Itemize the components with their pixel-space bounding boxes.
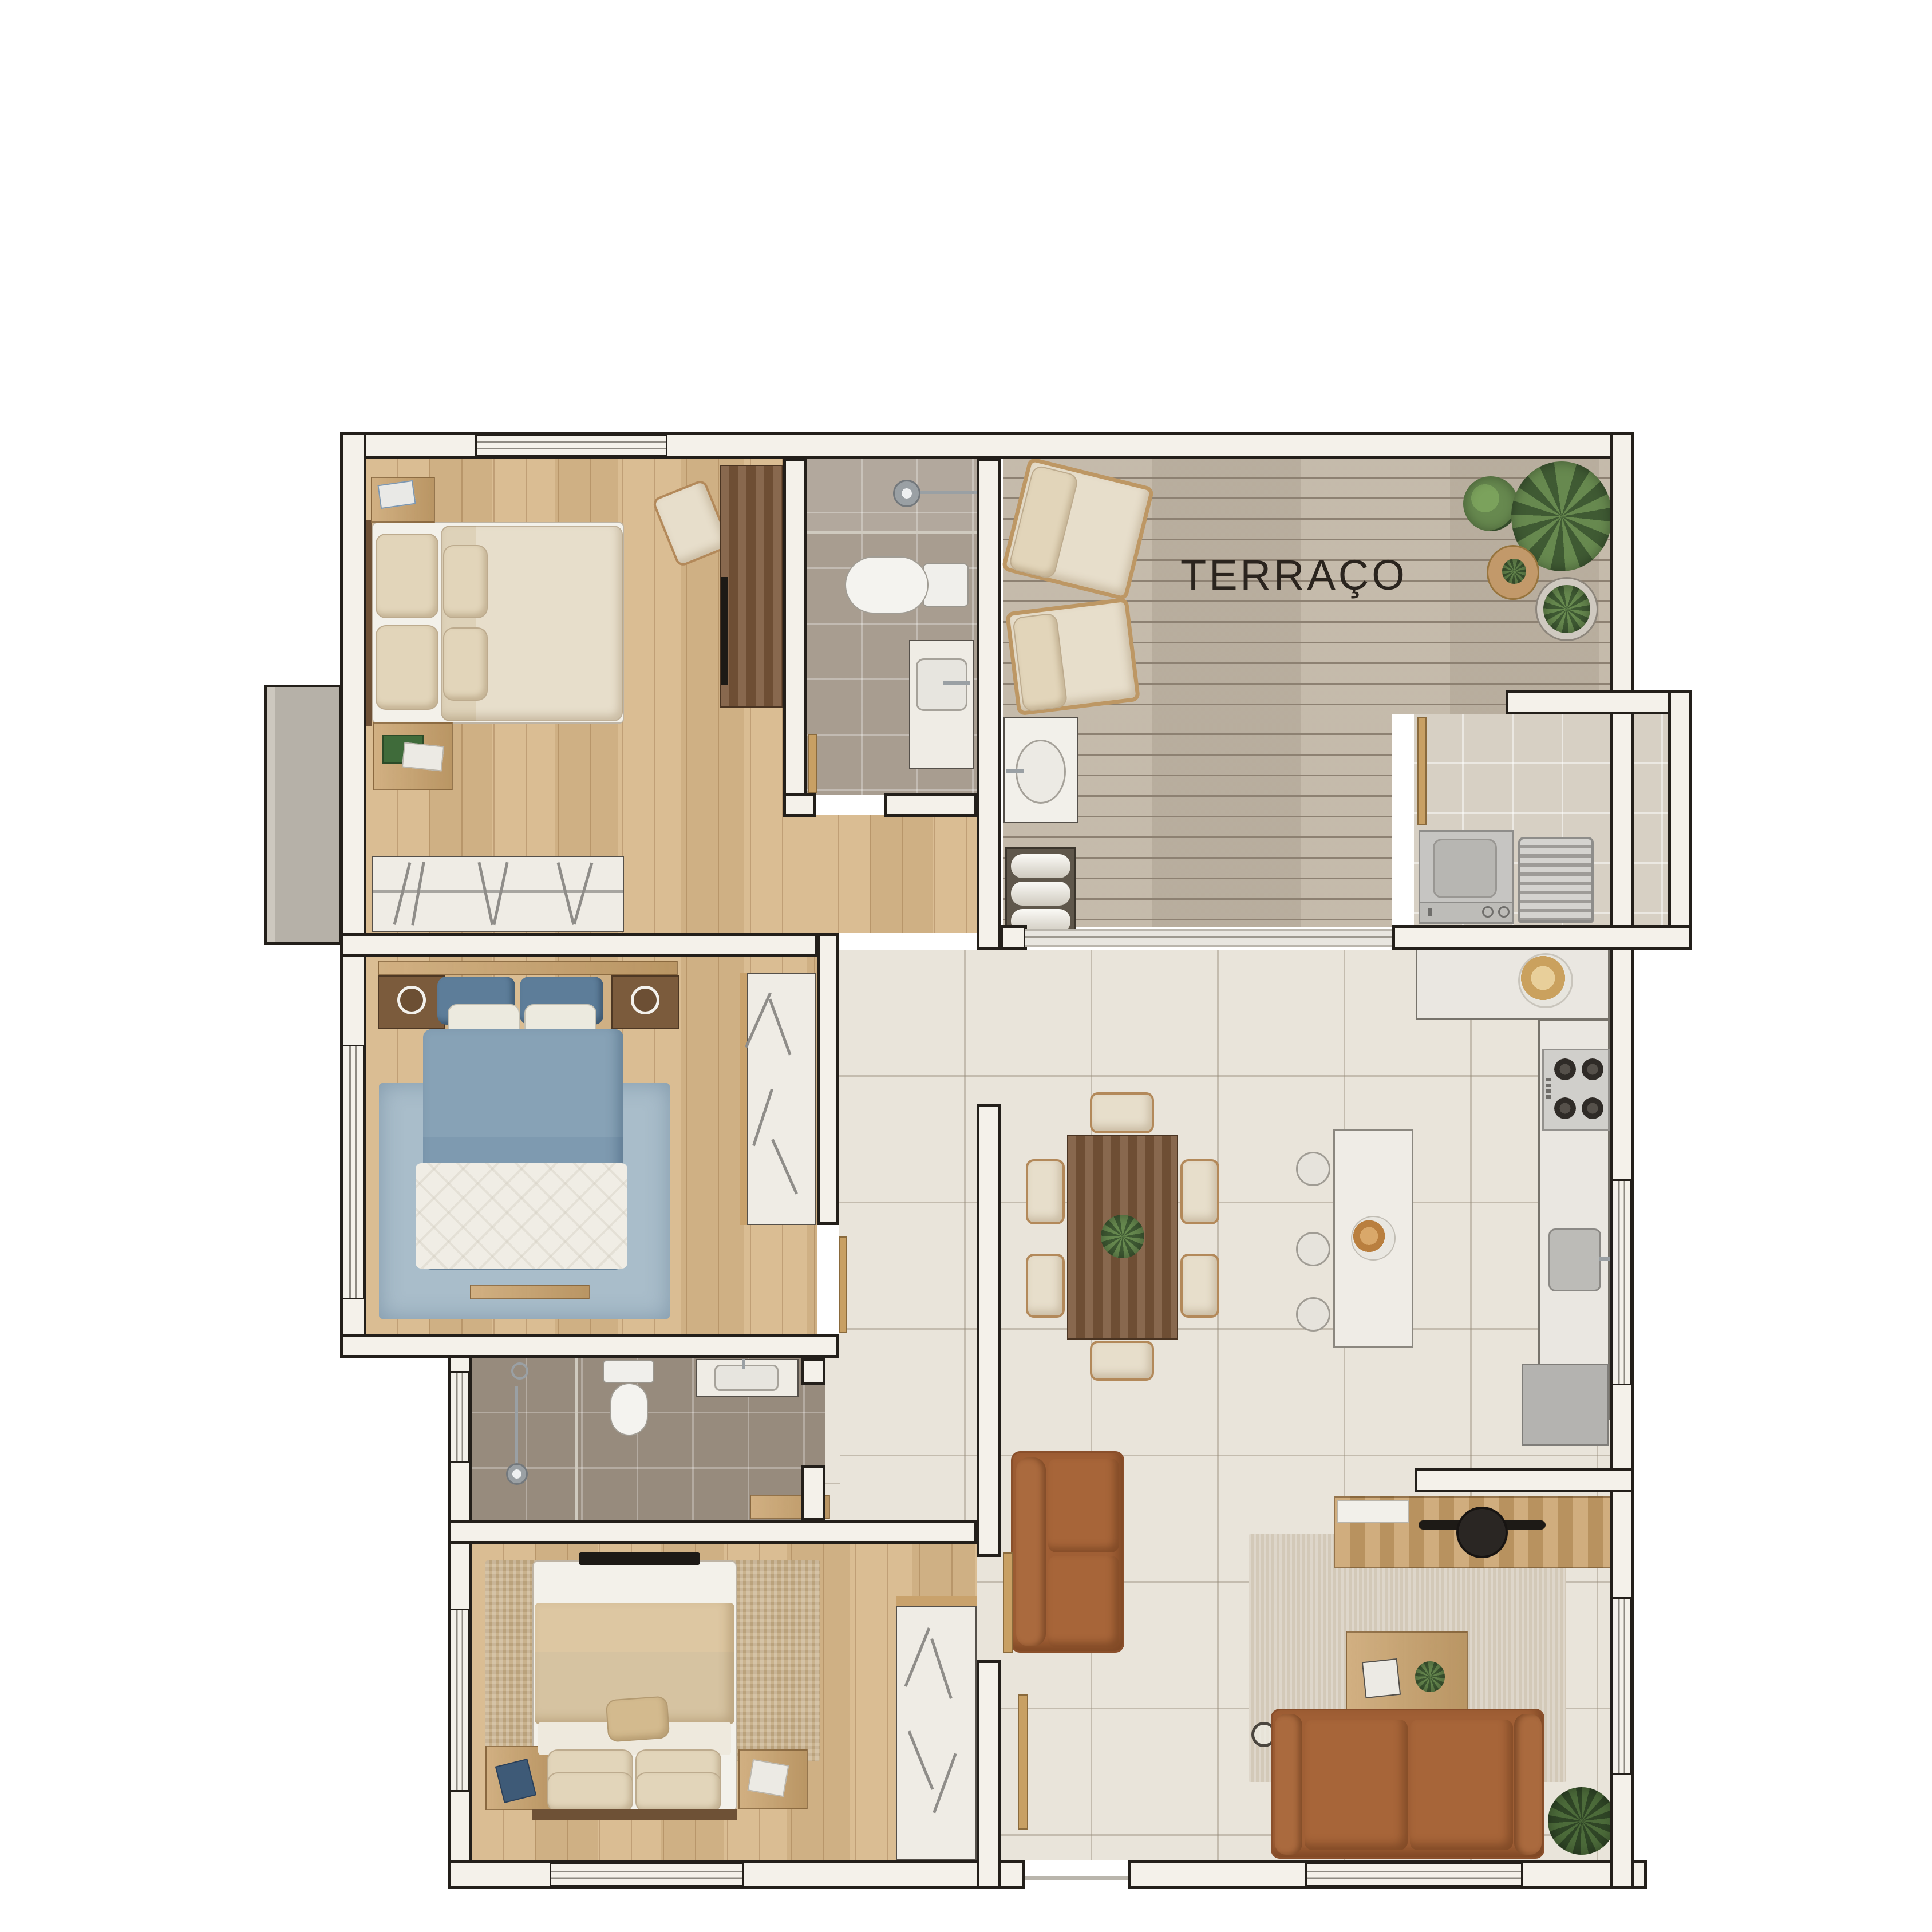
terrace-label: TERRAÇO [1180, 551, 1524, 602]
dining-chair [1026, 1159, 1065, 1224]
shower-hose [515, 1386, 518, 1464]
sofa-seat-cushion [1048, 1459, 1119, 1552]
kitchen-low-cabinet [1522, 1364, 1609, 1446]
dining-chair [1180, 1159, 1219, 1224]
wall-kitchen-living [1415, 1468, 1634, 1492]
sofa-arm [1514, 1714, 1542, 1855]
wall-bedroom1-bedroom2 [340, 933, 817, 957]
terrace-basin-faucet [1006, 769, 1024, 773]
wall-bathroom-1-right [977, 458, 1001, 950]
bed-2-foot-bench [470, 1285, 590, 1299]
floor-dressing-area [807, 815, 977, 933]
wardrobe-2-wood-edge [740, 973, 747, 1225]
terrace-bush-plant [1463, 476, 1518, 531]
coffee-table-books [1362, 1658, 1401, 1698]
wall-bathroom-2-right-b [801, 1465, 825, 1521]
window-bedroom-3-bottom [550, 1863, 744, 1887]
toilet-2-bowl [610, 1383, 648, 1436]
desk-tray [1337, 1500, 1409, 1523]
sofa-loveseat-horizontal [1271, 1709, 1544, 1859]
toilet-1-tank [923, 563, 969, 607]
wall-bathroom2-bedroom3 [448, 1520, 977, 1544]
magazine [748, 1759, 789, 1797]
wall-bedroom2-bathroom2 [340, 1334, 839, 1358]
sofa-seat-cushion [1410, 1720, 1513, 1850]
wall-bathroom-2-right-a [801, 1358, 825, 1385]
wall-hall-divider-lower [977, 1660, 1001, 1889]
book-white [402, 742, 444, 771]
handheld-shower-head [506, 1463, 528, 1485]
rolled-towel [1011, 882, 1070, 906]
shower-glass-panel [807, 531, 977, 534]
wall-hall-divider-upper [977, 1104, 1001, 1557]
closet-column [720, 465, 783, 708]
window-bedroom-3-left [449, 1609, 470, 1792]
vanity-1-sink [916, 658, 967, 711]
bar-stool [1296, 1232, 1330, 1266]
shower-drain [511, 1362, 528, 1380]
window-bedroom-1-top [475, 434, 667, 457]
stove-burner [1554, 1058, 1576, 1080]
bed-1-pillow [443, 627, 488, 701]
kitchen-sink [1548, 1228, 1601, 1291]
dining-chair [1180, 1254, 1219, 1318]
washer-knob [1498, 906, 1510, 918]
wall-sconce [397, 986, 426, 1014]
bed-3-pillow [635, 1772, 721, 1812]
wardrobe-3-wood-edge [896, 1596, 977, 1606]
bar-stool [1296, 1152, 1330, 1186]
island-plate [1351, 1216, 1396, 1261]
wall-bathroom-1-bottom-a [783, 793, 816, 817]
stove-cooktop [1542, 1049, 1610, 1131]
terrace-potted-plant-leaves [1543, 585, 1590, 633]
toilet-2-tank [603, 1360, 654, 1383]
window-living-bottom [1305, 1863, 1523, 1887]
wall-bathroom-1-left [783, 458, 807, 817]
living-corner-plant [1548, 1787, 1615, 1855]
washing-machine [1419, 830, 1514, 924]
bar-stool [1296, 1297, 1330, 1332]
stove-burner [1554, 1097, 1576, 1119]
desk-chair [1456, 1507, 1508, 1558]
floor-shower-zone-1 [807, 458, 977, 534]
door-bedroom-3 [1003, 1552, 1013, 1653]
lounge-back-cushion [1012, 613, 1068, 712]
bed-3-headboard [532, 1809, 737, 1820]
shower-glass-panel-2 [575, 1358, 578, 1520]
vanity-2-sink [714, 1365, 779, 1391]
coffee-table-plant [1415, 1661, 1445, 1692]
window-bedroom-2-left [342, 1045, 365, 1299]
tv-bedroom-3 [579, 1552, 700, 1565]
sliding-glass-door-terrace [1025, 929, 1392, 947]
door-bathroom-1 [808, 734, 817, 793]
washer-slot [1428, 908, 1432, 916]
wardrobe-bedroom-2 [747, 973, 816, 1225]
shower-head [893, 480, 920, 507]
bed-1-pillow [376, 534, 438, 618]
window-kitchen-right [1611, 1179, 1632, 1385]
entry-threshold [1025, 1876, 1128, 1880]
vanity-1-faucet [943, 681, 970, 685]
dining-chair [1026, 1254, 1065, 1318]
wall-bedroom-2-right [817, 933, 839, 1225]
dining-chair [1090, 1341, 1154, 1381]
door-laundry [1417, 717, 1427, 825]
stove-burner [1582, 1058, 1603, 1080]
tv-bedroom-1 [721, 577, 728, 685]
door-bedroom-2 [839, 1236, 847, 1333]
bed-2-quilt-white [416, 1163, 627, 1269]
kitchen-counter-top [1416, 942, 1610, 1020]
wall-sconce [631, 986, 659, 1014]
stove-burner [1582, 1097, 1603, 1119]
sofa-arm [1275, 1714, 1302, 1855]
stove-knobs [1546, 1078, 1551, 1099]
wall-laundry-top [1506, 690, 1692, 714]
floor-service-ledge [264, 685, 341, 945]
wall-bathroom-1-bottom-b [884, 793, 977, 817]
shower-arm [918, 491, 977, 494]
drying-rack [1518, 837, 1594, 923]
vanity-2-faucet [742, 1359, 745, 1369]
window-bathroom-2-left [449, 1371, 470, 1463]
wall-laundry-terrace-bottom [1392, 925, 1692, 950]
rolled-towel [1011, 854, 1070, 878]
sofa-loveseat-vertical [1011, 1451, 1124, 1653]
door-entry [1018, 1694, 1028, 1830]
bed-3-pillow [547, 1772, 633, 1812]
sofa-back-cushion [1016, 1457, 1046, 1646]
magazine [377, 480, 416, 509]
fruit-bowl [1518, 953, 1573, 1008]
window-living-right [1611, 1597, 1632, 1775]
lounge-chair [1005, 598, 1141, 716]
bed-3-accent-cushion [606, 1696, 670, 1742]
bed-1-pillow [443, 545, 488, 618]
wall-laundry-right [1668, 690, 1692, 950]
dining-centerpiece-plant [1101, 1215, 1144, 1258]
toilet-1-bowl [845, 556, 929, 614]
bed-2-headboard [378, 961, 678, 975]
dining-chair [1090, 1092, 1154, 1133]
wall-terrace-hall-stub [1001, 925, 1027, 950]
floor-plan: TERRAÇO [0, 0, 1932, 1932]
washer-door [1433, 839, 1497, 898]
sofa-seat-cushion [1305, 1720, 1408, 1850]
bed-1-pillow [376, 625, 438, 710]
washer-knob [1482, 906, 1494, 918]
sofa-seat-cushion [1048, 1556, 1119, 1647]
